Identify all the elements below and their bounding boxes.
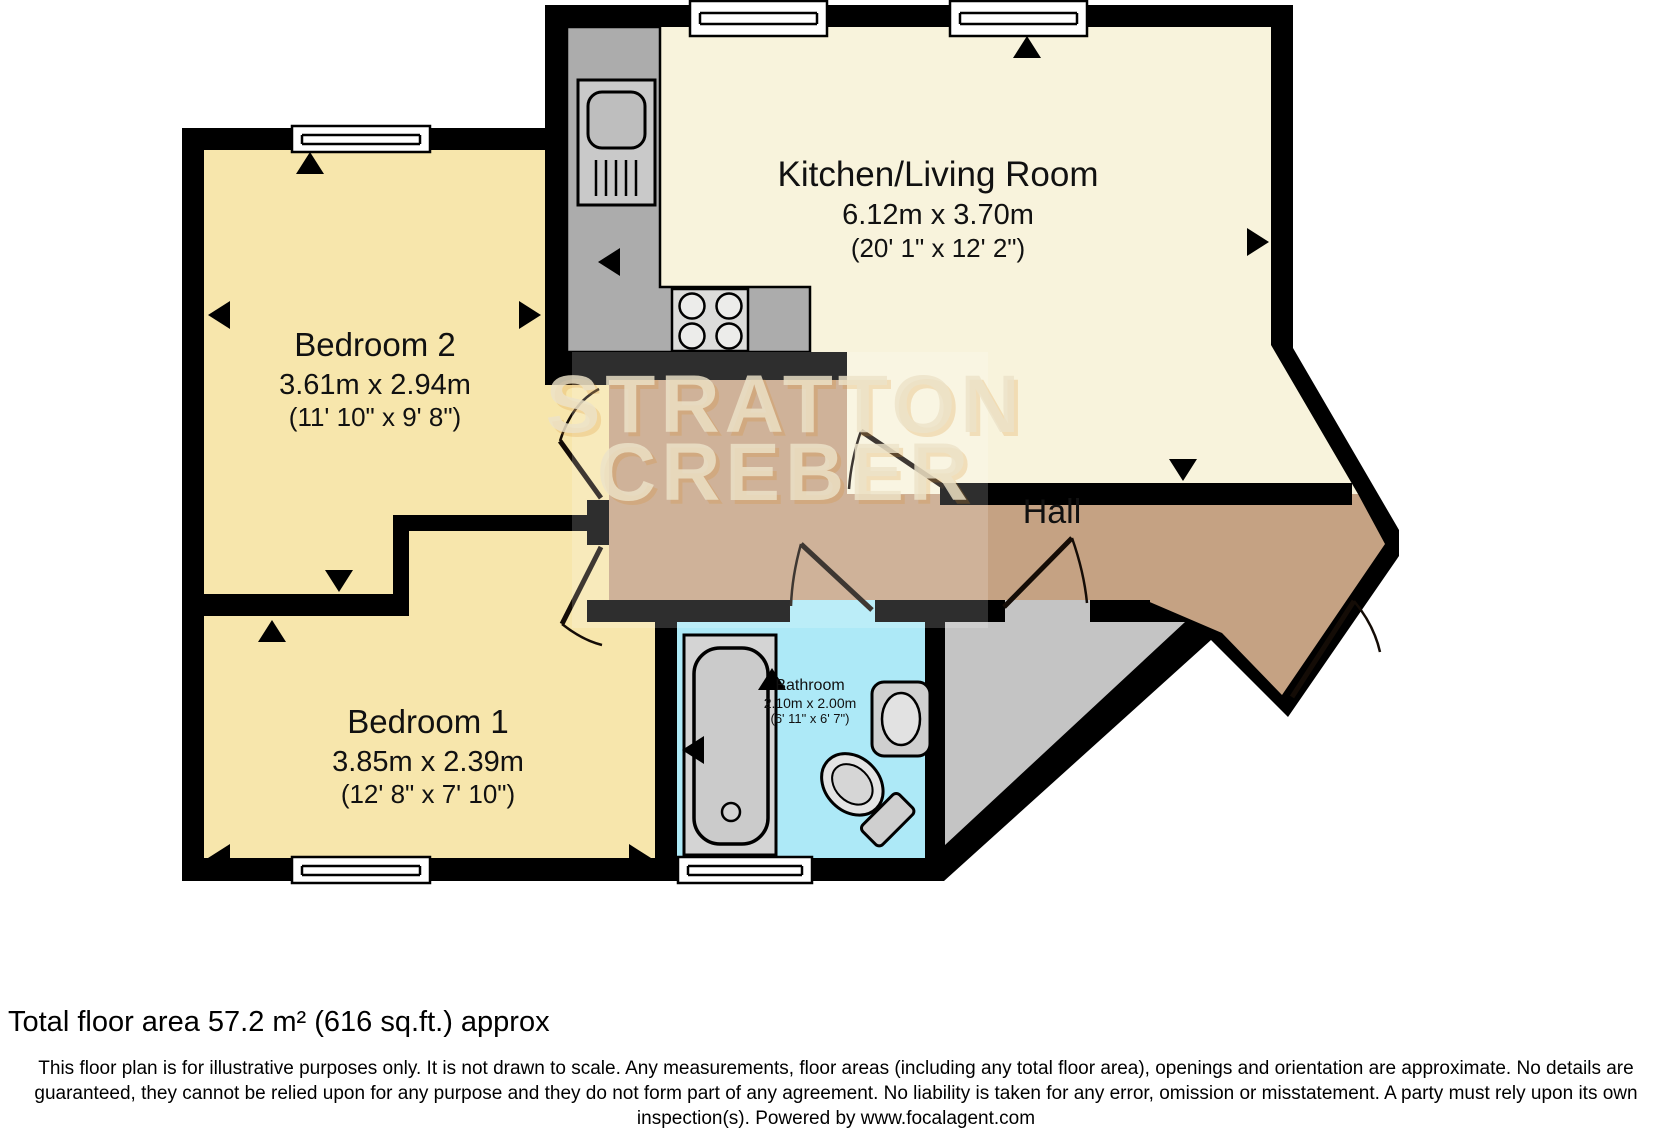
label-bathroom: Bathroom <box>775 677 844 694</box>
label-hall: Hall <box>1023 493 1082 531</box>
label-bathroom-metric: 2.10m x 2.00m <box>764 695 857 711</box>
label-bedroom-2-imperial: (11' 10" x 9' 8") <box>289 402 461 432</box>
disclaimer-text: This floor plan is for illustrative purp… <box>0 1056 1672 1131</box>
wash-basin-icon <box>872 682 930 756</box>
window-bathroom <box>678 857 812 883</box>
label-kitchen-living-metric: 6.12m x 3.70m <box>842 199 1034 231</box>
label-bedroom-1: Bedroom 1 <box>347 703 508 740</box>
room-storage-triangle <box>945 600 1185 845</box>
kitchen-sink-icon <box>578 80 655 205</box>
label-bedroom-1-metric: 3.85m x 2.39m <box>332 746 524 778</box>
label-kitchen-living-imperial: (20' 1" x 12' 2") <box>851 233 1025 263</box>
window-bedroom-2 <box>292 126 430 152</box>
watermark-line-2: CREBER <box>597 427 973 518</box>
label-bedroom-2-metric: 3.61m x 2.94m <box>279 369 471 401</box>
label-bedroom-1-imperial: (12' 8" x 7' 10") <box>341 779 515 809</box>
label-bedroom-2: Bedroom 2 <box>294 326 455 363</box>
stove-icon <box>672 289 748 351</box>
floor-plan: Kitchen/Living Room 6.12m x 3.70m (20' 1… <box>0 0 1672 960</box>
floorplan-page: Kitchen/Living Room 6.12m x 3.70m (20' 1… <box>0 0 1672 1136</box>
total-floor-area: Total floor area 57.2 m² (616 sq.ft.) ap… <box>8 1006 550 1039</box>
label-bathroom-imperial: (6' 11" x 6' 7") <box>771 711 850 726</box>
window-kitchen-2 <box>950 1 1087 36</box>
window-bedroom-1 <box>292 857 430 883</box>
label-kitchen-living: Kitchen/Living Room <box>778 155 1099 194</box>
watermark: STRATTON CREBER STRATTON CREBER <box>546 352 1029 628</box>
window-kitchen-1 <box>690 1 827 36</box>
